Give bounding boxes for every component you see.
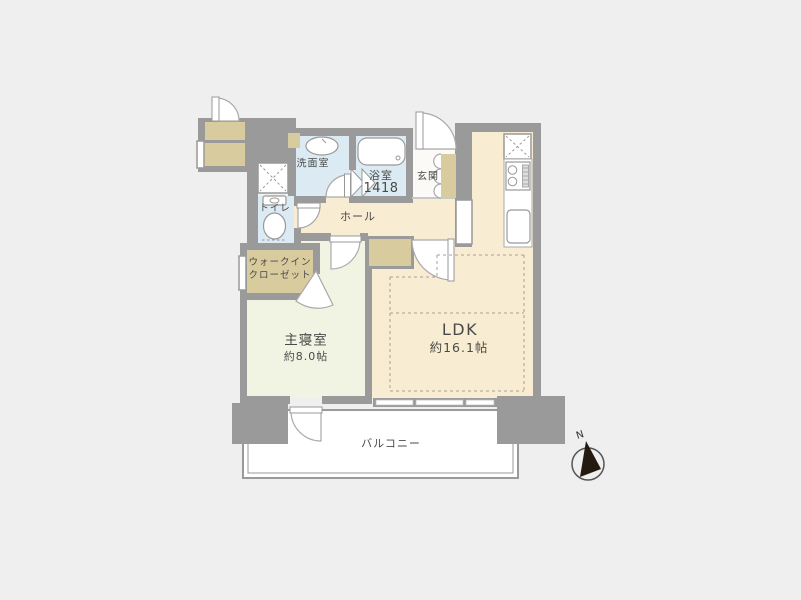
pipe-shaft [456,200,472,244]
kitchen-counter [504,159,532,247]
left-column [232,403,288,444]
compass-icon: N [572,429,604,480]
ldk-windows [373,398,497,407]
utility-window [197,141,204,168]
entrance-door [416,112,456,149]
floorplan-drawing: N [0,0,801,600]
bedroom-size: 約8.0帖 [284,351,329,363]
closet [369,239,411,266]
stove-icon [506,162,530,190]
toilet-label: トイレ [259,204,291,214]
right-column [497,396,565,444]
walk-in-closet-label-line2: クローゼット [248,271,311,281]
entrance-label: 玄関 [417,172,439,183]
kitchen-sink-icon [507,210,530,243]
meter-box [205,122,245,140]
ldk-size: 約16.1帖 [430,341,489,355]
wic-window [239,256,246,290]
refrigerator-space-icon [504,134,531,159]
washbasin-icon [306,137,338,155]
balcony-label: バルコニー [361,438,421,450]
pipe-space [203,143,245,166]
bedroom-label: 主寝室 [284,334,328,349]
bathtub-icon [358,138,405,165]
ldk-label: LDK [442,321,478,339]
utility-door [212,97,239,121]
walk-in-closet-label-line1: ウォークイン [248,258,311,268]
washer-space-icon [258,163,288,193]
hall-label: ホール [340,211,376,223]
compass-north-label: N [575,429,586,442]
washroom-label: 洗面室 [297,159,330,170]
floorplan-canvas: N 洗面室 浴室 1418 玄関 トイレ ホール ウォークイン クローゼット 主… [0,0,801,600]
bathroom-size: 1418 [363,182,398,196]
